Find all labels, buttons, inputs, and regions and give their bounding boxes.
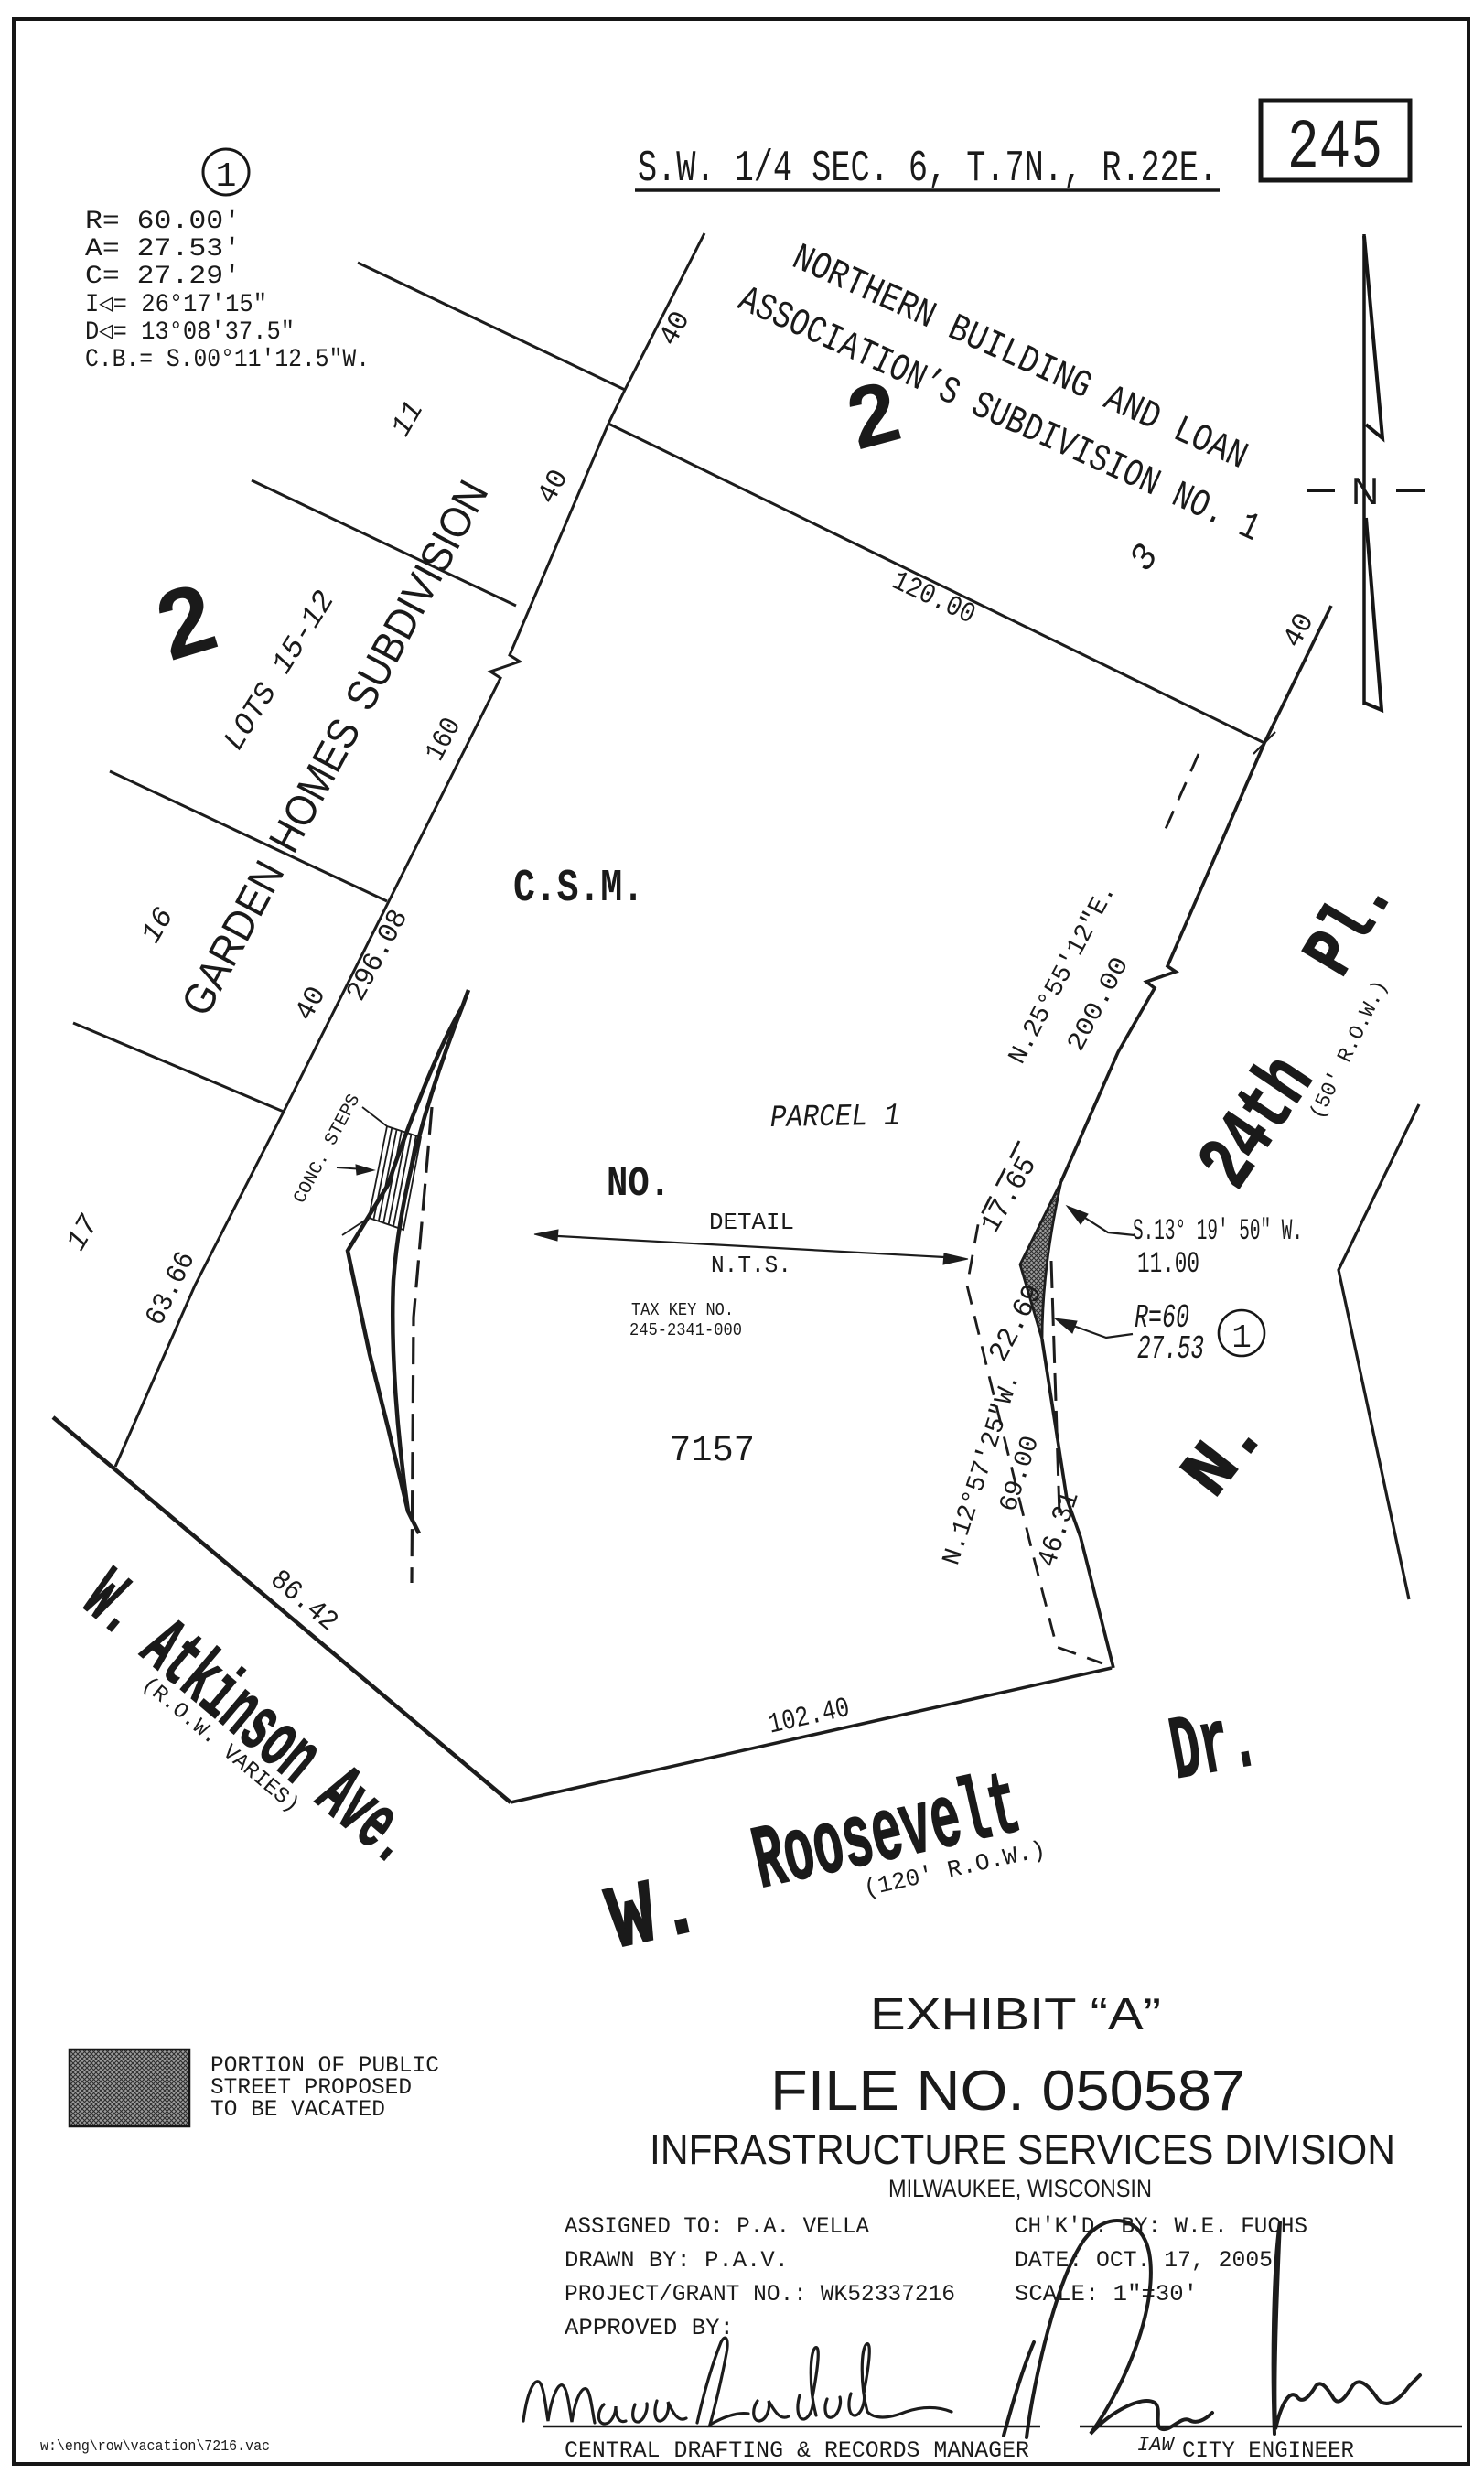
svg-text:Pl.: Pl. [1290,860,1414,991]
svg-text:7157: 7157 [670,1431,755,1472]
svg-text:Dr.: Dr. [1163,1690,1266,1805]
svg-text:17: 17 [59,1209,107,1256]
svg-text:APPROVED BY:: APPROVED BY: [565,2315,734,2341]
svg-text:A= 27.53ʹ: A= 27.53ʹ [85,235,241,264]
svg-text:DATE: OCT. 17, 2005: DATE: OCT. 17, 2005 [1015,2247,1273,2274]
svg-text:CENTRAL DRAFTING & RECORDS MAN: CENTRAL DRAFTING & RECORDS MANAGER [565,2437,1029,2464]
svg-text:S.W. 1/4 SEC. 6, T.7N., R.22E.: S.W. 1/4 SEC. 6, T.7N., R.22E. [638,145,1218,194]
svg-text:40: 40 [532,465,575,510]
svg-text:IAW: IAW [1137,2434,1175,2457]
svg-text:ASSIGNED TO: P.A. VELLA: ASSIGNED TO: P.A. VELLA [565,2213,869,2240]
svg-text:W.: W. [599,1856,713,1974]
svg-text:NO.: NO. [607,1161,671,1208]
svg-text:D◁= 13°08ʹ37.5ʺ: D◁= 13°08ʹ37.5ʺ [85,318,295,347]
svg-text:3: 3 [1123,538,1169,579]
svg-text:w:\eng\row\vacation\7216.vac: w:\eng\row\vacation\7216.vac [40,2438,270,2456]
svg-text:CITY ENGINEER: CITY ENGINEER [1182,2437,1354,2464]
svg-text:1: 1 [1231,1319,1252,1357]
svg-text:INFRASTRUCTURE SERVICES DIVISI: INFRASTRUCTURE SERVICES DIVISION [650,2126,1395,2173]
svg-text:11.00: 11.00 [1137,1247,1199,1281]
svg-text:(50ʹ R.O.W.): (50ʹ R.O.W.) [1306,976,1393,1123]
svg-text:C.S.M.: C.S.M. [513,863,644,915]
svg-text:SCALE: 1ʺ=30ʹ: SCALE: 1ʺ=30ʹ [1015,2281,1198,2307]
svg-text:296.08: 296.08 [341,905,416,1007]
svg-text:MILWAUKEE, WISCONSIN: MILWAUKEE, WISCONSIN [888,2175,1152,2202]
svg-text:C= 27.29ʹ: C= 27.29ʹ [85,263,241,291]
svg-text:PARCEL 1: PARCEL 1 [770,1100,901,1136]
svg-text:N.: N. [1168,1396,1285,1513]
svg-text:DRAWN BY: P.A.V.: DRAWN BY: P.A.V. [565,2247,789,2274]
svg-text:40: 40 [289,982,333,1027]
svg-text:120.00: 120.00 [887,565,980,631]
svg-text:DETAIL: DETAIL [709,1209,794,1236]
svg-text:N: N [1351,469,1379,512]
svg-text:PROJECT/GRANT NO.: WK52337216: PROJECT/GRANT NO.: WK52337216 [565,2281,955,2307]
svg-text:16: 16 [134,902,181,950]
svg-text:N.T.S.: N.T.S. [711,1252,791,1279]
svg-text:27.53: 27.53 [1137,1330,1204,1368]
svg-text:2: 2 [145,563,228,682]
svg-text:40: 40 [653,307,697,351]
svg-text:245: 245 [1287,109,1382,188]
svg-text:I◁= 26°17ʹ15ʺ: I◁= 26°17ʹ15ʺ [85,291,267,319]
svg-text:C.B.= S.00°11ʹ12.5ʺW.: C.B.= S.00°11ʹ12.5ʺW. [85,346,370,374]
svg-text:S.13° 19ʹ 50ʺ W.: S.13° 19ʹ 50ʺ W. [1133,1214,1303,1248]
svg-text:EXHIBIT “A”: EXHIBIT “A” [870,1990,1161,2039]
svg-text:11: 11 [384,395,431,443]
svg-text:24th: 24th [1182,1041,1333,1205]
svg-text:245-2341-000: 245-2341-000 [629,1320,742,1340]
svg-text:W. Atkinson Ave.: W. Atkinson Ave. [65,1555,434,1885]
svg-text:17.65: 17.65 [975,1152,1044,1239]
svg-text:FILE NO. 050587: FILE NO. 050587 [770,2060,1245,2123]
svg-text:R= 60.00ʹ: R= 60.00ʹ [85,208,241,236]
svg-text:CONC. STEPS: CONC. STEPS [290,1091,365,1207]
svg-text:TO BE VACATED: TO BE VACATED [210,2096,385,2123]
svg-text:1: 1 [216,157,237,197]
svg-text:40: 40 [1277,608,1321,653]
svg-text:TAX KEY NO.: TAX KEY NO. [631,1300,734,1320]
svg-text:CHʹKʹD. BY: W.E. FUCHS: CHʹKʹD. BY: W.E. FUCHS [1015,2213,1307,2240]
